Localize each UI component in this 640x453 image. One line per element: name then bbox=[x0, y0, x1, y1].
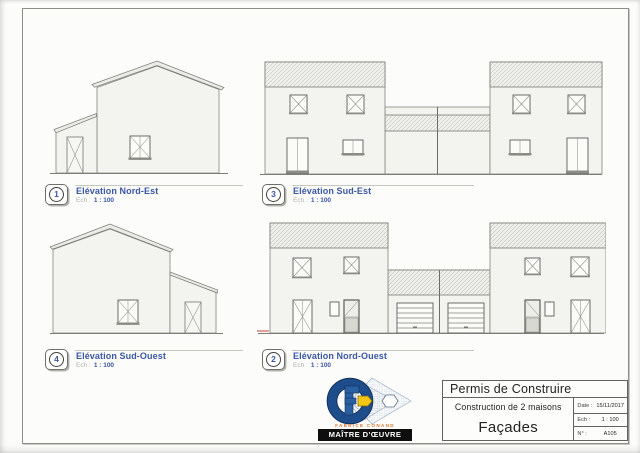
title-block-left-cell: Construction de 2 maisons Façades bbox=[443, 398, 574, 441]
logo-banner: MAÎTRE D'ŒUVRE bbox=[318, 429, 412, 441]
field-date: Date : 15/11/2017 bbox=[574, 398, 627, 414]
project-name: Construction de 2 maisons bbox=[455, 402, 562, 412]
title-block-fields: Date : 15/11/2017 Ech : 1 : 100 N° : A10… bbox=[574, 398, 627, 441]
field-scale: Ech : 1 : 100 bbox=[574, 414, 627, 427]
elevation-number-icon: 4 bbox=[45, 349, 68, 370]
elevation-drawing-sud-ouest bbox=[40, 218, 240, 340]
elevation-label-sud-est: 3 Elévation Sud-Est Ech :1 : 100 bbox=[262, 184, 371, 205]
logo-emblem-icon bbox=[317, 377, 413, 425]
elevation-number-icon: 1 bbox=[45, 184, 68, 205]
elevation-number-icon: 2 bbox=[262, 349, 285, 370]
sheet-name: Façades bbox=[478, 419, 538, 436]
elevation-title: Elévation Nord-Ouest bbox=[293, 351, 387, 361]
label-rule bbox=[292, 185, 474, 186]
elevation-title: Elévation Sud-Ouest bbox=[76, 351, 166, 361]
elevation-label-nord-est: 1 Elévation Nord-Est Ech :1 : 100 bbox=[45, 184, 158, 205]
elevation-scale: Ech :1 : 100 bbox=[293, 362, 387, 369]
scan-shadow bbox=[0, 444, 640, 453]
scanned-sheet: 1 Elévation Nord-Est Ech :1 : 100 3 Elév… bbox=[0, 0, 640, 453]
elevation-title: Elévation Sud-Est bbox=[293, 186, 371, 196]
company-logo: FABRICE CONAND MAÎTRE D'ŒUVRE bbox=[317, 377, 413, 444]
elevation-drawing-nord-ouest bbox=[256, 218, 606, 340]
logo-firm-name: FABRICE CONAND bbox=[317, 423, 413, 428]
title-block-body: Construction de 2 maisons Façades Date :… bbox=[443, 398, 627, 441]
field-number: N° : A105 bbox=[574, 427, 627, 441]
title-block-title: Permis de Construire bbox=[443, 381, 627, 398]
title-block: Permis de Construire Construction de 2 m… bbox=[442, 380, 628, 441]
elevation-number-icon: 3 bbox=[262, 184, 285, 205]
elevation-drawing-sud-est bbox=[256, 40, 606, 185]
label-rule bbox=[292, 350, 474, 351]
elevation-label-sud-ouest: 4 Elévation Sud-Ouest Ech :1 : 100 bbox=[45, 349, 166, 370]
elevation-drawing-nord-est bbox=[40, 40, 240, 185]
label-rule bbox=[75, 350, 243, 351]
elevation-scale: Ech :1 : 100 bbox=[76, 362, 166, 369]
label-rule bbox=[75, 185, 243, 186]
elevation-title: Elévation Nord-Est bbox=[76, 186, 158, 196]
elevation-scale: Ech :1 : 100 bbox=[293, 197, 371, 204]
elevation-scale: Ech :1 : 100 bbox=[76, 197, 158, 204]
elevation-label-nord-ouest: 2 Elévation Nord-Ouest Ech :1 : 100 bbox=[262, 349, 387, 370]
